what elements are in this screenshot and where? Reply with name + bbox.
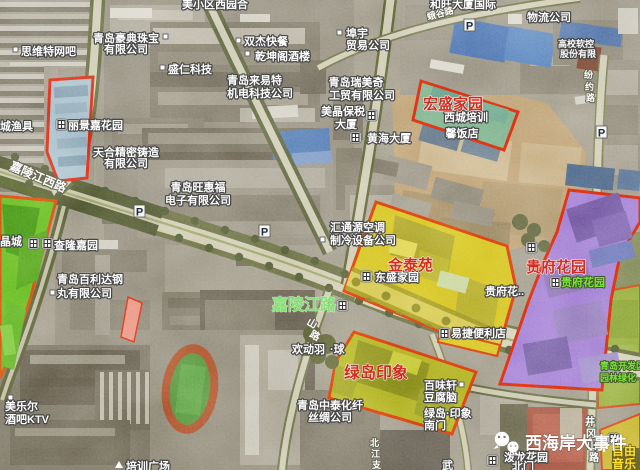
svg-text:高校软控: 高校软控: [558, 38, 594, 49]
svg-text:制冷设备公司: 制冷设备公司: [330, 233, 396, 247]
svg-text:工贸有限公司: 工贸有限公司: [329, 88, 395, 102]
svg-text:有限公司: 有限公司: [104, 156, 148, 170]
svg-text:思维特网吧: 思维特网吧: [21, 44, 76, 58]
svg-text:青岛来易特: 青岛来易特: [227, 73, 282, 87]
svg-text:豆腐脑: 豆腐脑: [424, 390, 457, 404]
svg-text:易捷便利店: 易捷便利店: [451, 326, 506, 340]
svg-text:P: P: [466, 21, 473, 33]
svg-text:青岛百利达钢: 青岛百利达钢: [57, 272, 123, 286]
svg-text:丽景嘉花园: 丽景嘉花园: [68, 118, 123, 132]
svg-text:绿岛·印象: 绿岛·印象: [424, 406, 472, 420]
svg-text:大厦: 大厦: [335, 117, 358, 131]
svg-text:培训广场: 培训广场: [126, 459, 170, 470]
svg-text:物流公司: 物流公司: [527, 10, 571, 24]
svg-text:美乐尔: 美乐尔: [5, 399, 38, 413]
svg-text:天合精密铸造: 天合精密铸造: [93, 145, 160, 159]
svg-text:股份有限: 股份有限: [560, 48, 597, 59]
svg-text:青岛中泰化纤: 青岛中泰化纤: [297, 398, 363, 412]
svg-text:埠宇: 埠宇: [346, 26, 368, 40]
svg-text:汇通源空调: 汇通源空调: [330, 220, 385, 234]
svg-text:贸易公司: 贸易公司: [346, 38, 390, 52]
svg-text:美小区西园合: 美小区西园合: [182, 0, 249, 11]
svg-text:美晶保税: 美晶保税: [321, 104, 365, 118]
svg-text:馨饭店: 馨饭店: [445, 126, 479, 140]
svg-text:贵府花园: 贵府花园: [561, 275, 605, 289]
svg-text:北: 北: [370, 437, 379, 448]
svg-text:城渔具: 城渔具: [0, 119, 33, 133]
svg-text:黄海大厦: 黄海大厦: [367, 131, 412, 145]
svg-text:丸有限公司: 丸有限公司: [56, 286, 112, 300]
svg-text:电子有限公司: 电子有限公司: [165, 193, 231, 207]
svg-text:酒吧KTV: 酒吧KTV: [5, 413, 50, 426]
svg-text:井: 井: [585, 415, 595, 428]
svg-text:纷: 纷: [584, 69, 593, 80]
svg-text:西海岸大事件: 西海岸大事件: [525, 433, 627, 453]
svg-text:有限公司: 有限公司: [104, 42, 148, 56]
svg-text:青岛瑞美奇: 青岛瑞美奇: [329, 75, 384, 89]
svg-text:百味轩: 百味轩: [424, 378, 457, 392]
svg-text:园林绿化: 园林绿化: [600, 372, 636, 383]
svg-text:双杰快餐: 双杰快餐: [244, 34, 289, 48]
svg-text:绿岛印象: 绿岛印象: [344, 363, 408, 382]
svg-text:江: 江: [371, 448, 380, 459]
svg-text:南门: 南门: [424, 418, 446, 432]
svg-text:丝绸公司: 丝绸公司: [308, 410, 352, 424]
svg-text:宏盛家园: 宏盛家园: [423, 95, 483, 113]
svg-text:金泰苑: 金泰苑: [387, 256, 433, 274]
svg-text:查隆嘉园: 查隆嘉园: [54, 238, 98, 252]
svg-text:音乐: 音乐: [612, 456, 636, 470]
svg-text:路: 路: [586, 92, 596, 103]
svg-text:支: 支: [371, 459, 382, 470]
svg-text:青岛豪典珠宝: 青岛豪典珠宝: [93, 31, 159, 45]
svg-text:青岛旺惠福: 青岛旺惠福: [171, 180, 226, 194]
svg-text:乾坤阁酒楼: 乾坤阁酒楼: [255, 49, 310, 63]
svg-text:青岛开发区: 青岛开发区: [600, 360, 640, 371]
svg-text:盛仁科技: 盛仁科技: [168, 62, 213, 76]
svg-text:贵府花..: 贵府花..: [485, 284, 524, 298]
svg-text:P: P: [598, 128, 605, 140]
svg-text:欢动羽: 欢动羽: [291, 342, 325, 356]
svg-text:北门: 北门: [512, 459, 534, 470]
svg-text:武: 武: [442, 458, 453, 470]
svg-text:晶城: 晶城: [0, 234, 22, 248]
svg-text:约: 约: [585, 81, 594, 92]
svg-text:·球: ·球: [330, 342, 346, 356]
svg-text:嘉陵江路: 嘉陵江路: [271, 295, 337, 314]
svg-text:机电科技公司: 机电科技公司: [227, 86, 293, 100]
svg-text:贵府花园: 贵府花园: [526, 258, 586, 276]
svg-text:P: P: [136, 207, 143, 219]
svg-text:P: P: [261, 227, 268, 239]
